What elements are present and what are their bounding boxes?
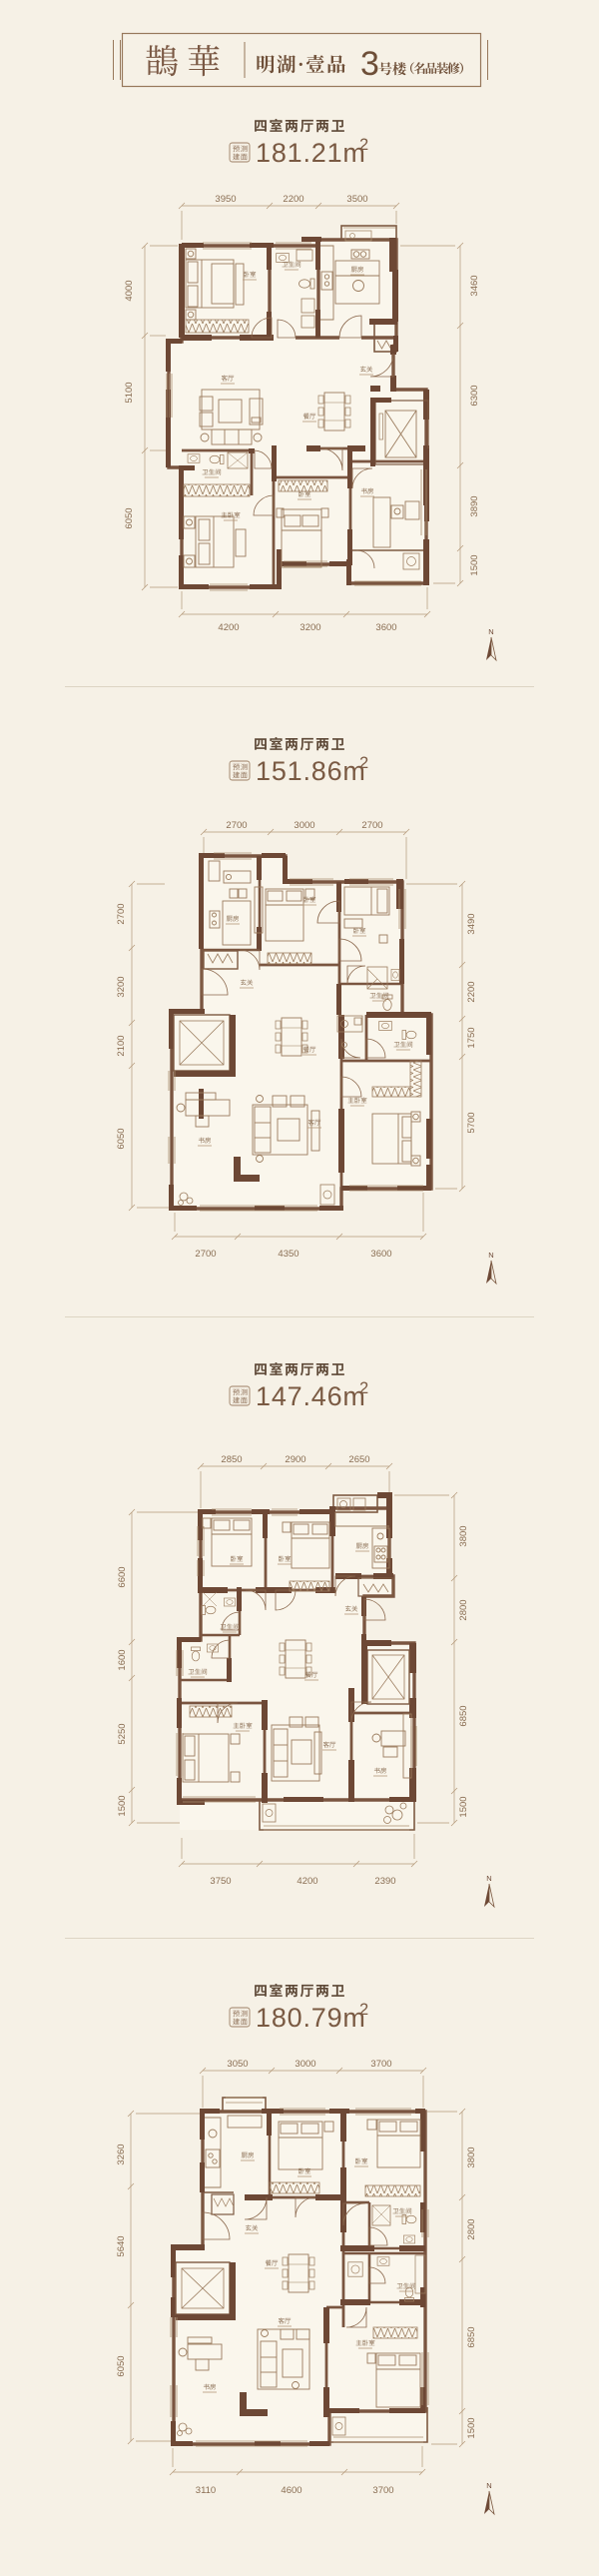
svg-text:3800: 3800: [466, 2147, 477, 2167]
svg-text:147.46m: 147.46m: [256, 1381, 366, 1411]
svg-text:1500: 1500: [466, 2417, 477, 2438]
svg-text:3260: 3260: [116, 2144, 127, 2164]
svg-text:151.86m: 151.86m: [256, 756, 366, 786]
svg-text:2: 2: [359, 136, 368, 154]
svg-text:180.79m: 180.79m: [256, 2003, 366, 2033]
svg-text:1500: 1500: [458, 1796, 469, 1817]
svg-text:1600: 1600: [117, 1649, 128, 1670]
svg-text:2: 2: [359, 754, 368, 772]
svg-text:2200: 2200: [466, 981, 477, 1002]
svg-text:6050: 6050: [116, 2355, 127, 2376]
svg-text:6300: 6300: [469, 385, 480, 406]
svg-text:181.21m: 181.21m: [256, 138, 366, 168]
svg-text:3700: 3700: [370, 2059, 391, 2070]
svg-text:5640: 5640: [116, 2235, 127, 2256]
svg-text:6600: 6600: [117, 1566, 128, 1587]
svg-text:6050: 6050: [116, 1128, 127, 1149]
svg-text:3600: 3600: [375, 622, 396, 633]
svg-text:5100: 5100: [124, 382, 135, 403]
svg-text:3: 3: [360, 45, 379, 83]
svg-text:3600: 3600: [370, 1249, 391, 1260]
svg-text:5700: 5700: [466, 1112, 477, 1133]
svg-text:4000: 4000: [124, 280, 135, 301]
svg-text:1500: 1500: [117, 1795, 128, 1816]
svg-text:3890: 3890: [469, 495, 480, 516]
svg-text:3200: 3200: [116, 976, 127, 997]
svg-text:3490: 3490: [466, 913, 477, 934]
svg-text:3000: 3000: [295, 2059, 315, 2070]
svg-text:3700: 3700: [372, 2485, 393, 2496]
svg-text:5250: 5250: [117, 1723, 128, 1744]
svg-text:3000: 3000: [294, 820, 314, 831]
svg-text:3200: 3200: [299, 622, 320, 633]
svg-text:4350: 4350: [278, 1249, 299, 1260]
svg-text:4200: 4200: [297, 1876, 317, 1887]
svg-text:2700: 2700: [195, 1249, 216, 1260]
svg-text:6050: 6050: [124, 507, 135, 528]
svg-text:2100: 2100: [116, 1035, 127, 1056]
svg-text:2800: 2800: [458, 1599, 469, 1620]
svg-text:3800: 3800: [458, 1525, 469, 1546]
svg-text:2200: 2200: [283, 194, 303, 205]
svg-text:2390: 2390: [374, 1876, 395, 1887]
svg-text:2: 2: [359, 1379, 368, 1397]
svg-text:2650: 2650: [348, 1454, 369, 1465]
svg-text:1500: 1500: [469, 554, 480, 575]
svg-text:3500: 3500: [346, 194, 367, 205]
svg-text:3460: 3460: [469, 275, 480, 296]
svg-text:3950: 3950: [215, 194, 236, 205]
svg-text:4600: 4600: [281, 2485, 301, 2496]
svg-text:2700: 2700: [116, 903, 127, 924]
svg-text:2900: 2900: [285, 1454, 305, 1465]
svg-text:2: 2: [359, 2001, 368, 2019]
svg-text:6850: 6850: [458, 1705, 469, 1726]
svg-text:3050: 3050: [227, 2059, 248, 2070]
svg-text:6850: 6850: [466, 2326, 477, 2347]
svg-text:2700: 2700: [226, 820, 247, 831]
svg-text:2800: 2800: [466, 2218, 477, 2239]
svg-text:3750: 3750: [210, 1876, 231, 1887]
svg-text:4200: 4200: [218, 622, 239, 633]
svg-text:3110: 3110: [196, 2485, 216, 2496]
svg-text:1750: 1750: [466, 1027, 477, 1048]
svg-text:2850: 2850: [221, 1454, 242, 1465]
svg-text:2700: 2700: [361, 820, 382, 831]
